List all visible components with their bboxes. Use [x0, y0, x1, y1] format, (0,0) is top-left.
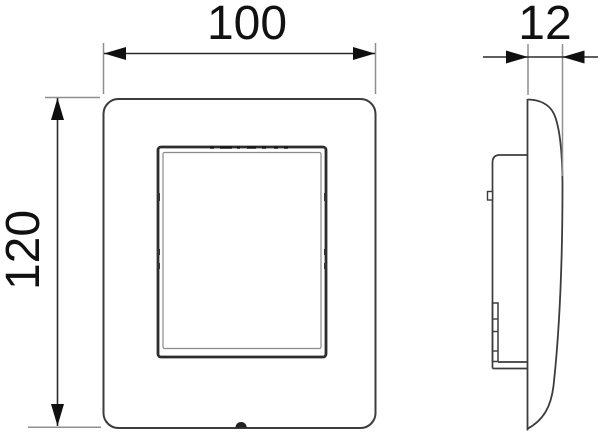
width-arrowhead-left-icon [104, 47, 126, 60]
frame-clip-left-upper [157, 193, 160, 201]
frame-clip-right-upper [324, 193, 327, 201]
frame-clip-left-mid [157, 249, 160, 255]
depth-arrowhead-right-icon [563, 51, 585, 64]
dimension-width: 100 [104, 0, 376, 94]
frame-clip-right-mid [324, 249, 327, 255]
front-view [104, 99, 376, 428]
width-arrowhead-right-icon [353, 47, 375, 60]
height-arrowhead-top-icon [51, 98, 64, 120]
frame-clip-left-lower [157, 263, 160, 269]
profile-curved-face [528, 100, 563, 429]
height-arrowhead-bottom-icon [51, 404, 64, 426]
bracket-tab [488, 192, 493, 201]
width-dimension-label: 100 [207, 0, 287, 50]
dimension-height: 120 [0, 98, 101, 428]
depth-arrowhead-left-icon [506, 51, 528, 64]
depth-dimension-label: 12 [518, 0, 571, 50]
height-dimension-label: 120 [0, 210, 50, 290]
side-profile-view [488, 99, 563, 431]
drawing-svg: 100 120 [0, 0, 600, 433]
dimension-depth: 12 [483, 0, 598, 176]
frame-clip-right-lower [324, 263, 327, 269]
button-panel-frame [158, 147, 326, 357]
technical-drawing: 100 120 [0, 0, 600, 433]
